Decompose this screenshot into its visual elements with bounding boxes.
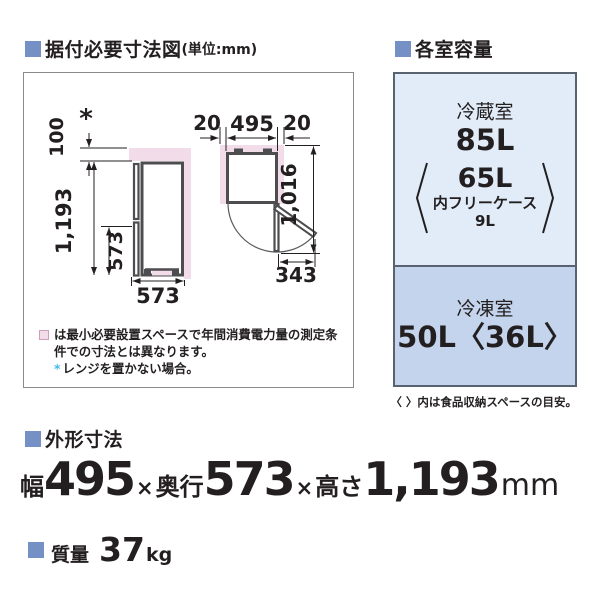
minimum-space-left [220, 152, 226, 204]
blue-square-icon [395, 41, 411, 57]
minimum-space-note: は最小必要設置スペースで年間消費電力量の測定条件での寸法とは異なります。 [39, 327, 343, 360]
dim-door-swing: 343 [275, 263, 317, 287]
unit-note: (単位:mm) [182, 39, 258, 59]
freezer-compartment-section: 冷凍室 50L〈36L〉 [395, 265, 575, 385]
fridge-body-side [142, 163, 183, 275]
capacity-caption: 〈 〉内は食品収納スペースの目安。 [385, 394, 577, 410]
outer-dimensions-header: 外形寸法 [25, 425, 123, 452]
installation-dimensions-header: 据付必要寸法図 (単位:mm) [25, 35, 257, 62]
width-value: 495 [44, 452, 134, 506]
fridge-compartment-section: 冷蔵室 85L 65L 内フリーケース 9L [395, 74, 575, 265]
pink-square-icon [39, 330, 49, 340]
asterisk-icon: * [54, 361, 60, 376]
millimeter-unit: mm [501, 468, 559, 503]
depth-value: 573 [204, 452, 294, 506]
blue-square-icon [25, 431, 41, 447]
free-case-capacity: 9L [475, 212, 495, 231]
fridge-body-top [228, 154, 277, 203]
dim-depth: 573 [136, 284, 180, 308]
depth-label: 奥行 [156, 467, 204, 502]
fridge-total-capacity: 85L [456, 124, 515, 157]
fridge-label: 冷蔵室 [456, 101, 513, 124]
fridge-inner-capacity: 65L [458, 165, 513, 193]
diagram-notes: は最小必要設置スペースで年間消費電力量の測定条件での寸法とは異なります。 *レン… [39, 327, 343, 378]
side-view [129, 148, 191, 279]
hinge-tab-right [263, 149, 272, 154]
weight-value: 37 [99, 530, 145, 569]
rear-foot [172, 269, 179, 276]
upper-door-side [134, 164, 139, 219]
fridge-detail-bracket: 65L 内フリーケース 9L [415, 160, 555, 236]
height-value: 1,193 [363, 452, 499, 506]
weight-line: 質量 37 kg [28, 530, 172, 569]
minimum-space-top [129, 148, 191, 161]
free-case-label: 内フリーケース [433, 194, 537, 213]
installation-title: 据付必要寸法図 [45, 35, 182, 62]
weight-label: 質量 [51, 540, 89, 567]
blue-square-icon [28, 542, 44, 558]
dim-open-depth: 1,016 [277, 163, 301, 226]
dim-left-clearance: 20 [193, 111, 221, 135]
minimum-space-rear [184, 161, 191, 279]
multiply-sign: × [136, 476, 154, 500]
front-foot [144, 269, 151, 276]
asterisk-note: *レンジを置かない場合。 [39, 361, 343, 378]
kilogram-unit: kg [146, 544, 172, 566]
capacity-title: 各室容量 [415, 35, 493, 62]
dim-total-height: 1,193 [52, 188, 76, 254]
top-view [220, 145, 316, 252]
angle-bracket-right-icon [541, 160, 555, 236]
minimum-space-back [220, 145, 284, 152]
installation-diagram-box: * 100 1,193 573 573 [23, 72, 354, 388]
hinge-tab-left [234, 149, 243, 154]
dim-top-clearance: 100 [46, 117, 68, 157]
capacity-header: 各室容量 [395, 35, 493, 62]
spec-sheet-page: 据付必要寸法図 (単位:mm) 各室容量 [0, 0, 600, 600]
dim-width: 495 [230, 112, 274, 136]
freezer-label: 冷凍室 [456, 298, 513, 321]
fridge-detail-values: 65L 内フリーケース 9L [433, 165, 537, 231]
capacity-panel: 冷蔵室 85L 65L 内フリーケース 9L 冷凍室 50L〈36L〉 [393, 72, 577, 387]
dim-lower-height: 573 [105, 231, 127, 271]
width-label: 幅 [20, 467, 44, 502]
multiply-sign: × [296, 476, 314, 500]
installation-diagram: * 100 1,193 573 573 [24, 73, 353, 323]
outer-dimensions-line: 幅 495 × 奥行 573 × 高さ 1,193 mm [20, 452, 559, 506]
freezer-capacity: 50L〈36L〉 [397, 321, 573, 354]
lower-door-side [134, 223, 139, 276]
minimum-space-note-text: は最小必要設置スペースで年間消費電力量の測定条件での寸法とは異なります。 [54, 327, 338, 359]
outer-dimensions-title: 外形寸法 [45, 425, 123, 452]
angle-bracket-left-icon [415, 160, 429, 236]
asterisk-note-text: レンジを置かない場合。 [62, 361, 198, 376]
asterisk-icon: * [79, 104, 93, 134]
height-label: 高さ [315, 467, 363, 502]
base-gap [152, 271, 172, 276]
blue-square-icon [25, 41, 41, 57]
dim-right-clearance: 20 [283, 111, 311, 135]
